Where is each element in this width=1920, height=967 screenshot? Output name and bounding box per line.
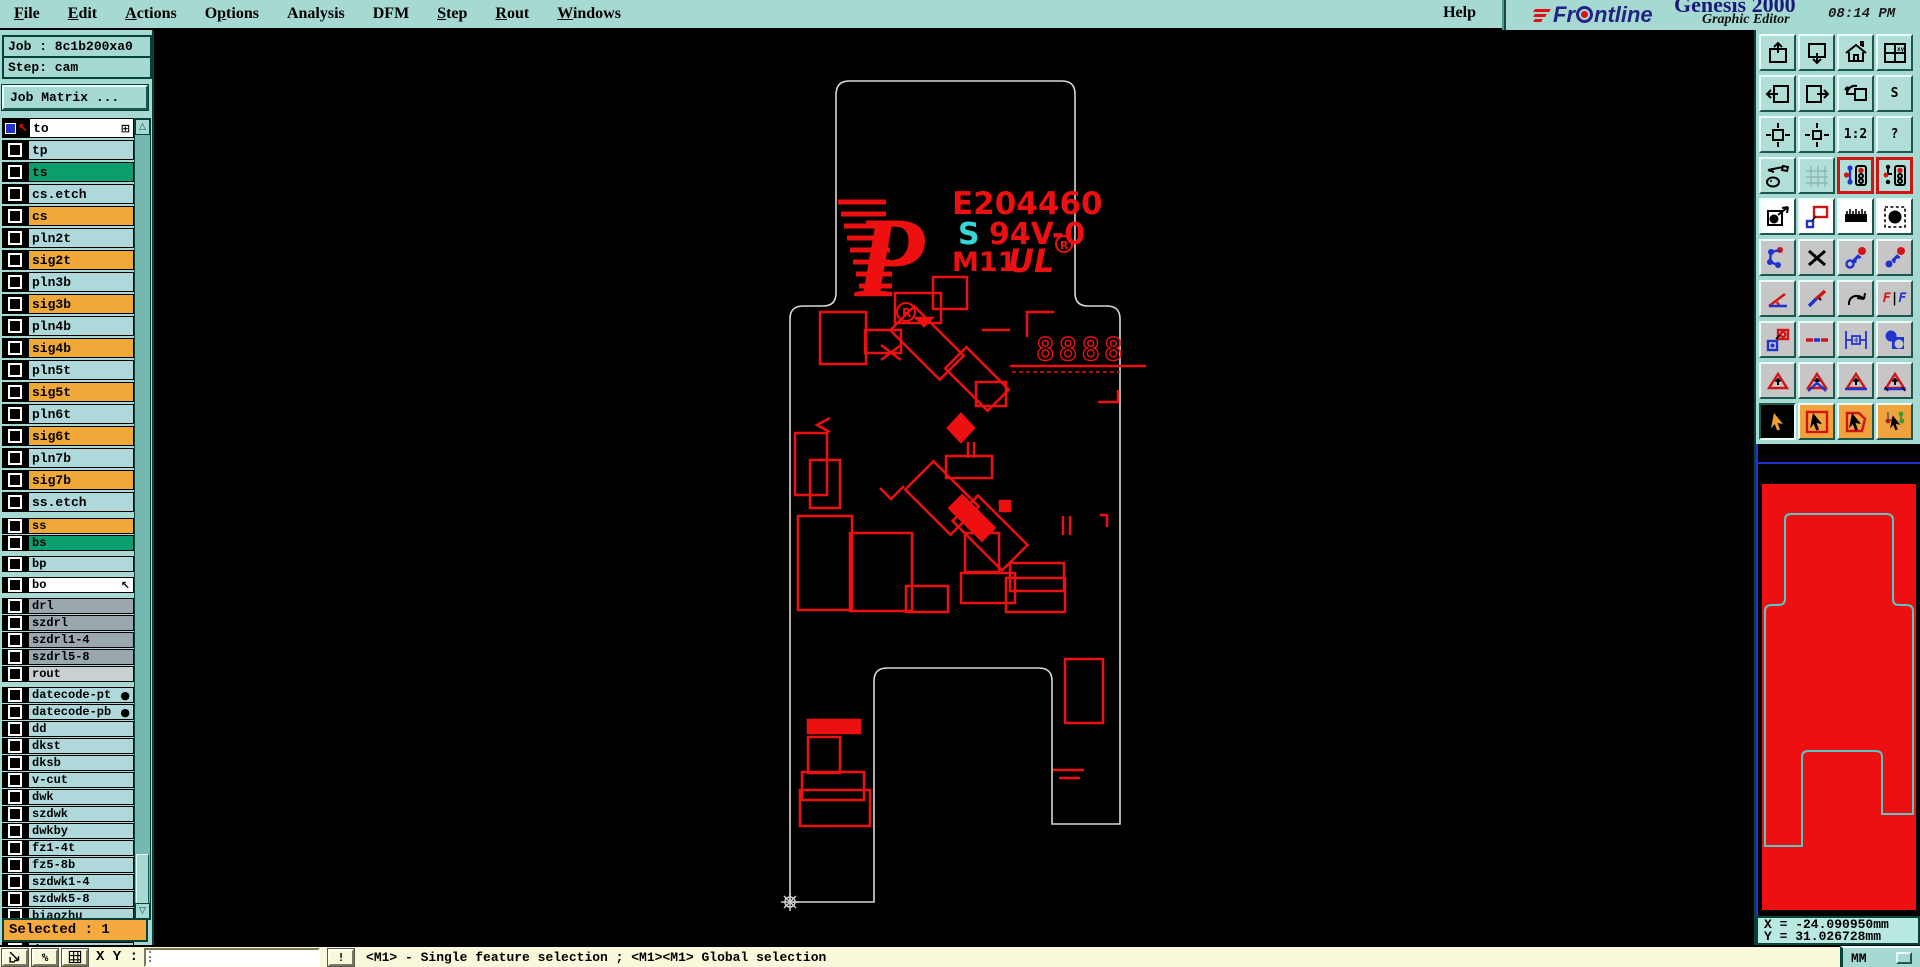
layer-name: ts: [29, 163, 133, 181]
layer-checkbox[interactable]: [8, 739, 22, 753]
layer-checkbox[interactable]: [8, 143, 22, 157]
genesis-2000-graphic-editor: FileEditActionsOptionsAnalysisDFMStepRou…: [0, 0, 1920, 967]
logo-speedlines-icon: [1534, 7, 1550, 24]
layer-checkbox[interactable]: [8, 385, 22, 399]
delete-x-button[interactable]: [1798, 239, 1835, 276]
grid-table-button[interactable]: [62, 949, 88, 966]
ruler-measure-button[interactable]: [1837, 198, 1874, 235]
home-view-button[interactable]: [1837, 34, 1874, 71]
layer-checkbox[interactable]: [8, 319, 22, 333]
frontline-logo-text: Frntline: [1553, 2, 1653, 28]
layer-name: sig6t: [29, 427, 133, 445]
layer-row-cs.etch[interactable]: cs.etch: [2, 184, 134, 204]
layer-checkbox[interactable]: [8, 667, 22, 681]
touching-pads-button[interactable]: [1876, 321, 1913, 358]
truncated-indicator-icon: ●: [120, 689, 130, 702]
layer-checkbox[interactable]: [8, 892, 22, 906]
shrink-view-button[interactable]: [1798, 116, 1835, 153]
triangle-a-button[interactable]: [1759, 362, 1796, 399]
menu-dfm[interactable]: DFM: [359, 5, 423, 23]
zoom-ratio-button[interactable]: 1:2: [1837, 116, 1874, 153]
layer-name: fz1-4t: [29, 841, 133, 855]
layer-row-sig5t[interactable]: sig5t: [2, 382, 134, 402]
menu-edit[interactable]: Edit: [54, 5, 111, 23]
layer-checkbox[interactable]: [8, 578, 22, 592]
layer-row-ss[interactable]: ss: [2, 518, 134, 534]
overview-minimap[interactable]: [1759, 484, 1919, 910]
layer-checkbox[interactable]: [8, 858, 22, 872]
layer-checkbox[interactable]: [8, 616, 22, 630]
layer-checkbox[interactable]: [8, 557, 22, 571]
job-matrix-button[interactable]: Job Matrix ...: [2, 85, 148, 110]
menu-windows[interactable]: Windows: [543, 5, 635, 23]
layer-row-bp[interactable]: bp: [2, 556, 134, 572]
layer-name: cs.etch: [29, 185, 133, 203]
layer-checkbox[interactable]: [8, 209, 22, 223]
clock: 08:14 PM: [1828, 6, 1895, 22]
layer-checkbox[interactable]: [8, 536, 22, 550]
menubar: FileEditActionsOptionsAnalysisDFMStepRou…: [0, 0, 1920, 30]
layer-name: szdrl1-4: [29, 633, 133, 647]
seven-segment-digits: 8888: [1036, 332, 1127, 368]
layer-row-bs[interactable]: bs: [2, 535, 134, 551]
pointer-mode-button[interactable]: [2, 949, 28, 966]
layer-checkbox[interactable]: [8, 705, 22, 719]
layer-checkbox[interactable]: [8, 722, 22, 736]
view-box-left-button[interactable]: [1759, 75, 1796, 112]
cursor-polygon-button[interactable]: [1837, 403, 1874, 440]
scrollbar-up-icon[interactable]: △: [135, 119, 150, 135]
layer-row-szdrl1-4[interactable]: szdrl1-4: [2, 632, 134, 648]
job-label: Job : 8c1b200xa0: [4, 37, 150, 58]
layer-checkbox[interactable]: [8, 253, 22, 267]
layer-name: szdrl5-8: [29, 650, 133, 664]
layer-checkbox[interactable]: [8, 688, 22, 702]
view-box-up-button[interactable]: [1759, 34, 1796, 71]
layer-checkbox[interactable]: [8, 599, 22, 613]
cursor-net-button[interactable]: [1876, 403, 1913, 440]
layer-name: sig2t: [29, 251, 133, 269]
layer-name: szdwk5-8: [29, 892, 133, 906]
sidebar: Job : 8c1b200xa0 Step: cam Job Matrix ..…: [0, 30, 154, 945]
layer-name: tp: [29, 141, 133, 159]
diagonal-line-button[interactable]: [1798, 280, 1835, 317]
layer-row-dwk[interactable]: dwk: [2, 789, 134, 805]
selected-count: Selected : 1: [2, 918, 148, 942]
text-caret: [149, 951, 153, 962]
main-canvas[interactable]: P R E204460 S 94V-0 M11 UL R 8888: [154, 30, 1754, 945]
scrollbar-down-icon[interactable]: ▽: [135, 903, 150, 919]
layer-row-datecode-pt[interactable]: datecode-pt●: [2, 687, 134, 703]
select-feature-button[interactable]: [1759, 198, 1796, 235]
layer-row-sig6t[interactable]: sig6t: [2, 426, 134, 446]
layer-checkbox[interactable]: [8, 275, 22, 289]
layer-name: sig4b: [29, 339, 133, 357]
layer-name: bs: [29, 536, 133, 550]
net-highlight-a-button[interactable]: [1837, 157, 1874, 194]
layer-name: sig5t: [29, 383, 133, 401]
layer-row-szdwk5-8[interactable]: szdwk5-8: [2, 891, 134, 907]
minimap-area: [1756, 444, 1920, 916]
layer-row-sig7b[interactable]: sig7b: [2, 470, 134, 490]
units-mini-button[interactable]: [1896, 952, 1912, 964]
job-panel: Job : 8c1b200xa0 Step: cam: [2, 35, 152, 79]
layer-name: to⊞: [30, 119, 133, 137]
layer-row-bo[interactable]: bo↖: [2, 577, 134, 593]
work-layer-icon[interactable]: ↖: [5, 123, 28, 134]
step-label: Step: cam: [4, 58, 150, 77]
layer-row-szdwk1-4[interactable]: szdwk1-4: [2, 874, 134, 890]
layer-row-rout[interactable]: rout: [2, 666, 134, 682]
layer-name: pln4b: [29, 317, 133, 335]
xy-label: X Y :: [96, 949, 138, 965]
layer-name: dwk: [29, 790, 133, 804]
angle-measure-button[interactable]: [1759, 280, 1796, 317]
right-panel: xyS1:2?F|F4 X = -24.090950mm Y = 31.0267…: [1754, 30, 1920, 945]
layer-checkbox[interactable]: [8, 407, 22, 421]
layer-name: fz5-8b: [29, 858, 133, 872]
layer-row-sig3b[interactable]: sig3b: [2, 294, 134, 314]
layer-row-dkst[interactable]: dkst: [2, 738, 134, 754]
layer-row-fz1-4t[interactable]: fz1-4t: [2, 840, 134, 856]
layer-row-pln5t[interactable]: pln5t: [2, 360, 134, 380]
layer-row-sig2t[interactable]: sig2t: [2, 250, 134, 270]
ul-logo: UL: [1008, 242, 1054, 280]
layer-name: dwkby: [29, 824, 133, 838]
width-measure-button[interactable]: 4: [1837, 321, 1874, 358]
coord-y: Y = 31.026728mm: [1764, 929, 1881, 944]
draw-tools-button[interactable]: [1759, 157, 1796, 194]
dashed-line-button[interactable]: [1798, 321, 1835, 358]
cursor-frame-button[interactable]: [1798, 403, 1835, 440]
date-code: M11: [952, 247, 1016, 278]
layer-name: pln7b: [29, 449, 133, 467]
view-box-right-button[interactable]: [1798, 75, 1835, 112]
layer-row-pln2t[interactable]: pln2t: [2, 228, 134, 248]
layer-row-fz5-8b[interactable]: fz5-8b: [2, 857, 134, 873]
s-shape-button[interactable]: S: [1876, 75, 1913, 112]
minimap-divider: [1758, 462, 1920, 464]
layer-checkbox[interactable]: [8, 773, 22, 787]
units-panel: MM: [1840, 946, 1920, 967]
mirror-ff-button[interactable]: F|F: [1876, 280, 1913, 317]
layer-name: cs: [29, 207, 133, 225]
layer-row-szdwk[interactable]: szdwk: [2, 806, 134, 822]
layer-row-dwkby[interactable]: dwkby: [2, 823, 134, 839]
layer-list-scrollbar[interactable]: △ ▽: [134, 118, 151, 920]
layer-row-dd[interactable]: dd: [2, 721, 134, 737]
cursor-select-button[interactable]: [1759, 403, 1796, 440]
layer-name: rout: [29, 667, 133, 681]
triangle-b-button[interactable]: [1798, 362, 1835, 399]
layer-row-tp[interactable]: tp: [2, 140, 134, 160]
layer-row-ss.etch[interactable]: ss.etch: [2, 492, 134, 512]
layer-checkbox[interactable]: [8, 451, 22, 465]
menu-step[interactable]: Step: [423, 5, 481, 23]
layer-name: szdwk: [29, 807, 133, 821]
menu-actions[interactable]: Actions: [111, 5, 191, 23]
coordinate-readout: X = -24.090950mm Y = 31.026728mm: [1756, 916, 1920, 945]
triangle-c-button[interactable]: [1837, 362, 1874, 399]
grid-cell-icon: ⊞: [121, 122, 130, 135]
pcb-drawing[interactable]: P R E204460 S 94V-0 M11 UL R 8888: [154, 30, 1754, 945]
layer-name: bp: [29, 557, 133, 571]
layer-checkbox[interactable]: [8, 650, 22, 664]
menu-rout[interactable]: Rout: [481, 5, 543, 23]
xy-input-wrap: [144, 948, 320, 967]
layer-checkbox[interactable]: [8, 633, 22, 647]
expand-view-button[interactable]: [1759, 116, 1796, 153]
svg-text:xy: xy: [1897, 46, 1905, 53]
layer-name: drl: [29, 599, 133, 613]
view-box-down-button[interactable]: [1798, 34, 1835, 71]
alert-button[interactable]: !: [328, 949, 354, 966]
layer-row-ts[interactable]: ts: [2, 162, 134, 182]
layer-checkbox[interactable]: [8, 429, 22, 443]
layer-checkbox[interactable]: [8, 756, 22, 770]
net-highlight-b-button[interactable]: [1876, 157, 1913, 194]
menu-analysis[interactable]: Analysis: [273, 5, 359, 23]
layer-name: dd: [29, 722, 133, 736]
layer-row-drl[interactable]: drl: [2, 598, 134, 614]
layer-name: pln3b: [29, 273, 133, 291]
measure-objects-button[interactable]: [1798, 198, 1835, 235]
arc-tool-button[interactable]: [1837, 280, 1874, 317]
layer-name: ss: [29, 519, 133, 533]
layer-name: ss.etch: [29, 493, 133, 511]
layer-row-pln4b[interactable]: pln4b: [2, 316, 134, 336]
brand-area: Frntline Genesis 2000 Graphic Editor 08:…: [1502, 0, 1920, 30]
layer-checkbox[interactable]: [8, 495, 22, 509]
layer-checkbox[interactable]: [8, 341, 22, 355]
previous-view-button[interactable]: [1837, 75, 1874, 112]
origin-marker-icon: [781, 893, 799, 911]
menu-options[interactable]: Options: [191, 5, 273, 23]
layer-row-cs[interactable]: cs: [2, 206, 134, 226]
statusbar: % X Y : ! <M1> - Single feature selectio…: [0, 945, 1920, 967]
menu-items: FileEditActionsOptionsAnalysisDFMStepRou…: [0, 5, 635, 23]
svg-text:4: 4: [1854, 336, 1858, 344]
layer-name: pln6t: [29, 405, 133, 423]
layer-name: datecode-pt●: [29, 688, 133, 702]
layer-name: dkst: [29, 739, 133, 753]
status-message: <M1> - Single feature selection ; <M1><M…: [366, 950, 826, 965]
triangle-d-button[interactable]: [1876, 362, 1913, 399]
pointer-icon: ↖: [121, 579, 130, 592]
truncated-indicator-icon: ●: [120, 706, 130, 719]
pad-to-pad-button[interactable]: [1876, 239, 1913, 276]
pcb-p-letter: P: [853, 194, 925, 321]
layer-checkbox[interactable]: [8, 473, 22, 487]
layer-name: bo↖: [29, 578, 133, 592]
layer-list: ↖to⊞tptscs.etchcspln2tsig2tpln3bsig3bpln…: [2, 118, 134, 959]
layer-row-pln6t[interactable]: pln6t: [2, 404, 134, 424]
layer-row-szdrl[interactable]: szdrl: [2, 615, 134, 631]
window-xy-button[interactable]: xy: [1876, 34, 1913, 71]
layer-name: szdwk1-4: [29, 875, 133, 889]
toolbox: xyS1:2?F|F4: [1756, 32, 1920, 442]
layer-checkbox[interactable]: [8, 519, 22, 533]
layer-checkbox[interactable]: [8, 231, 22, 245]
layer-checkbox[interactable]: [8, 363, 22, 377]
layer-checkbox[interactable]: [8, 807, 22, 821]
open-to-pad-button[interactable]: [1837, 239, 1874, 276]
layer-name: pln2t: [29, 229, 133, 247]
layer-name: sig3b: [29, 295, 133, 313]
layer-row-dksb[interactable]: dksb: [2, 755, 134, 771]
units-toggle[interactable]: MM: [1851, 951, 1867, 966]
help-question-button[interactable]: ?: [1876, 116, 1913, 153]
layer-row-datecode-pb[interactable]: datecode-pb●: [2, 704, 134, 720]
layer-name: szdrl: [29, 616, 133, 630]
menu-file[interactable]: File: [0, 5, 54, 23]
grid-toggle-button[interactable]: [1798, 157, 1835, 194]
silkscreen-components: [795, 293, 1118, 826]
layer-checkbox[interactable]: [8, 824, 22, 838]
layer-name: sig7b: [29, 471, 133, 489]
pad-marquee-button[interactable]: [1876, 198, 1913, 235]
svg-text:R: R: [1060, 239, 1069, 252]
pad-copy-button[interactable]: [1759, 321, 1796, 358]
layer-row-szdrl5-8[interactable]: szdrl5-8: [2, 649, 134, 665]
layer-row-pln7b[interactable]: pln7b: [2, 448, 134, 468]
layer-checkbox[interactable]: [8, 297, 22, 311]
product-subtitle: Graphic Editor: [1702, 12, 1790, 28]
layer-checkbox[interactable]: [8, 790, 22, 804]
layer-row-pln3b[interactable]: pln3b: [2, 272, 134, 292]
layer-checkbox[interactable]: [8, 165, 22, 179]
layer-name: pln5t: [29, 361, 133, 379]
layer-row-v-cut[interactable]: v-cut: [2, 772, 134, 788]
menu-help[interactable]: Help: [1429, 4, 1490, 22]
layer-checkbox[interactable]: [8, 875, 22, 889]
net-points-button[interactable]: [1759, 239, 1796, 276]
layer-name: v-cut: [29, 773, 133, 787]
layer-row-sig4b[interactable]: sig4b: [2, 338, 134, 358]
layer-checkbox[interactable]: [8, 841, 22, 855]
scale-percent-button[interactable]: %: [32, 949, 58, 966]
layer-name: datecode-pb●: [29, 705, 133, 719]
layer-row-to[interactable]: ↖to⊞: [2, 118, 134, 138]
xy-coordinate-input[interactable]: [146, 950, 324, 965]
frontline-logo: Frntline: [1534, 2, 1653, 28]
layer-checkbox[interactable]: [8, 187, 22, 201]
scrollbar-thumb[interactable]: [136, 854, 149, 904]
layer-name: dksb: [29, 756, 133, 770]
